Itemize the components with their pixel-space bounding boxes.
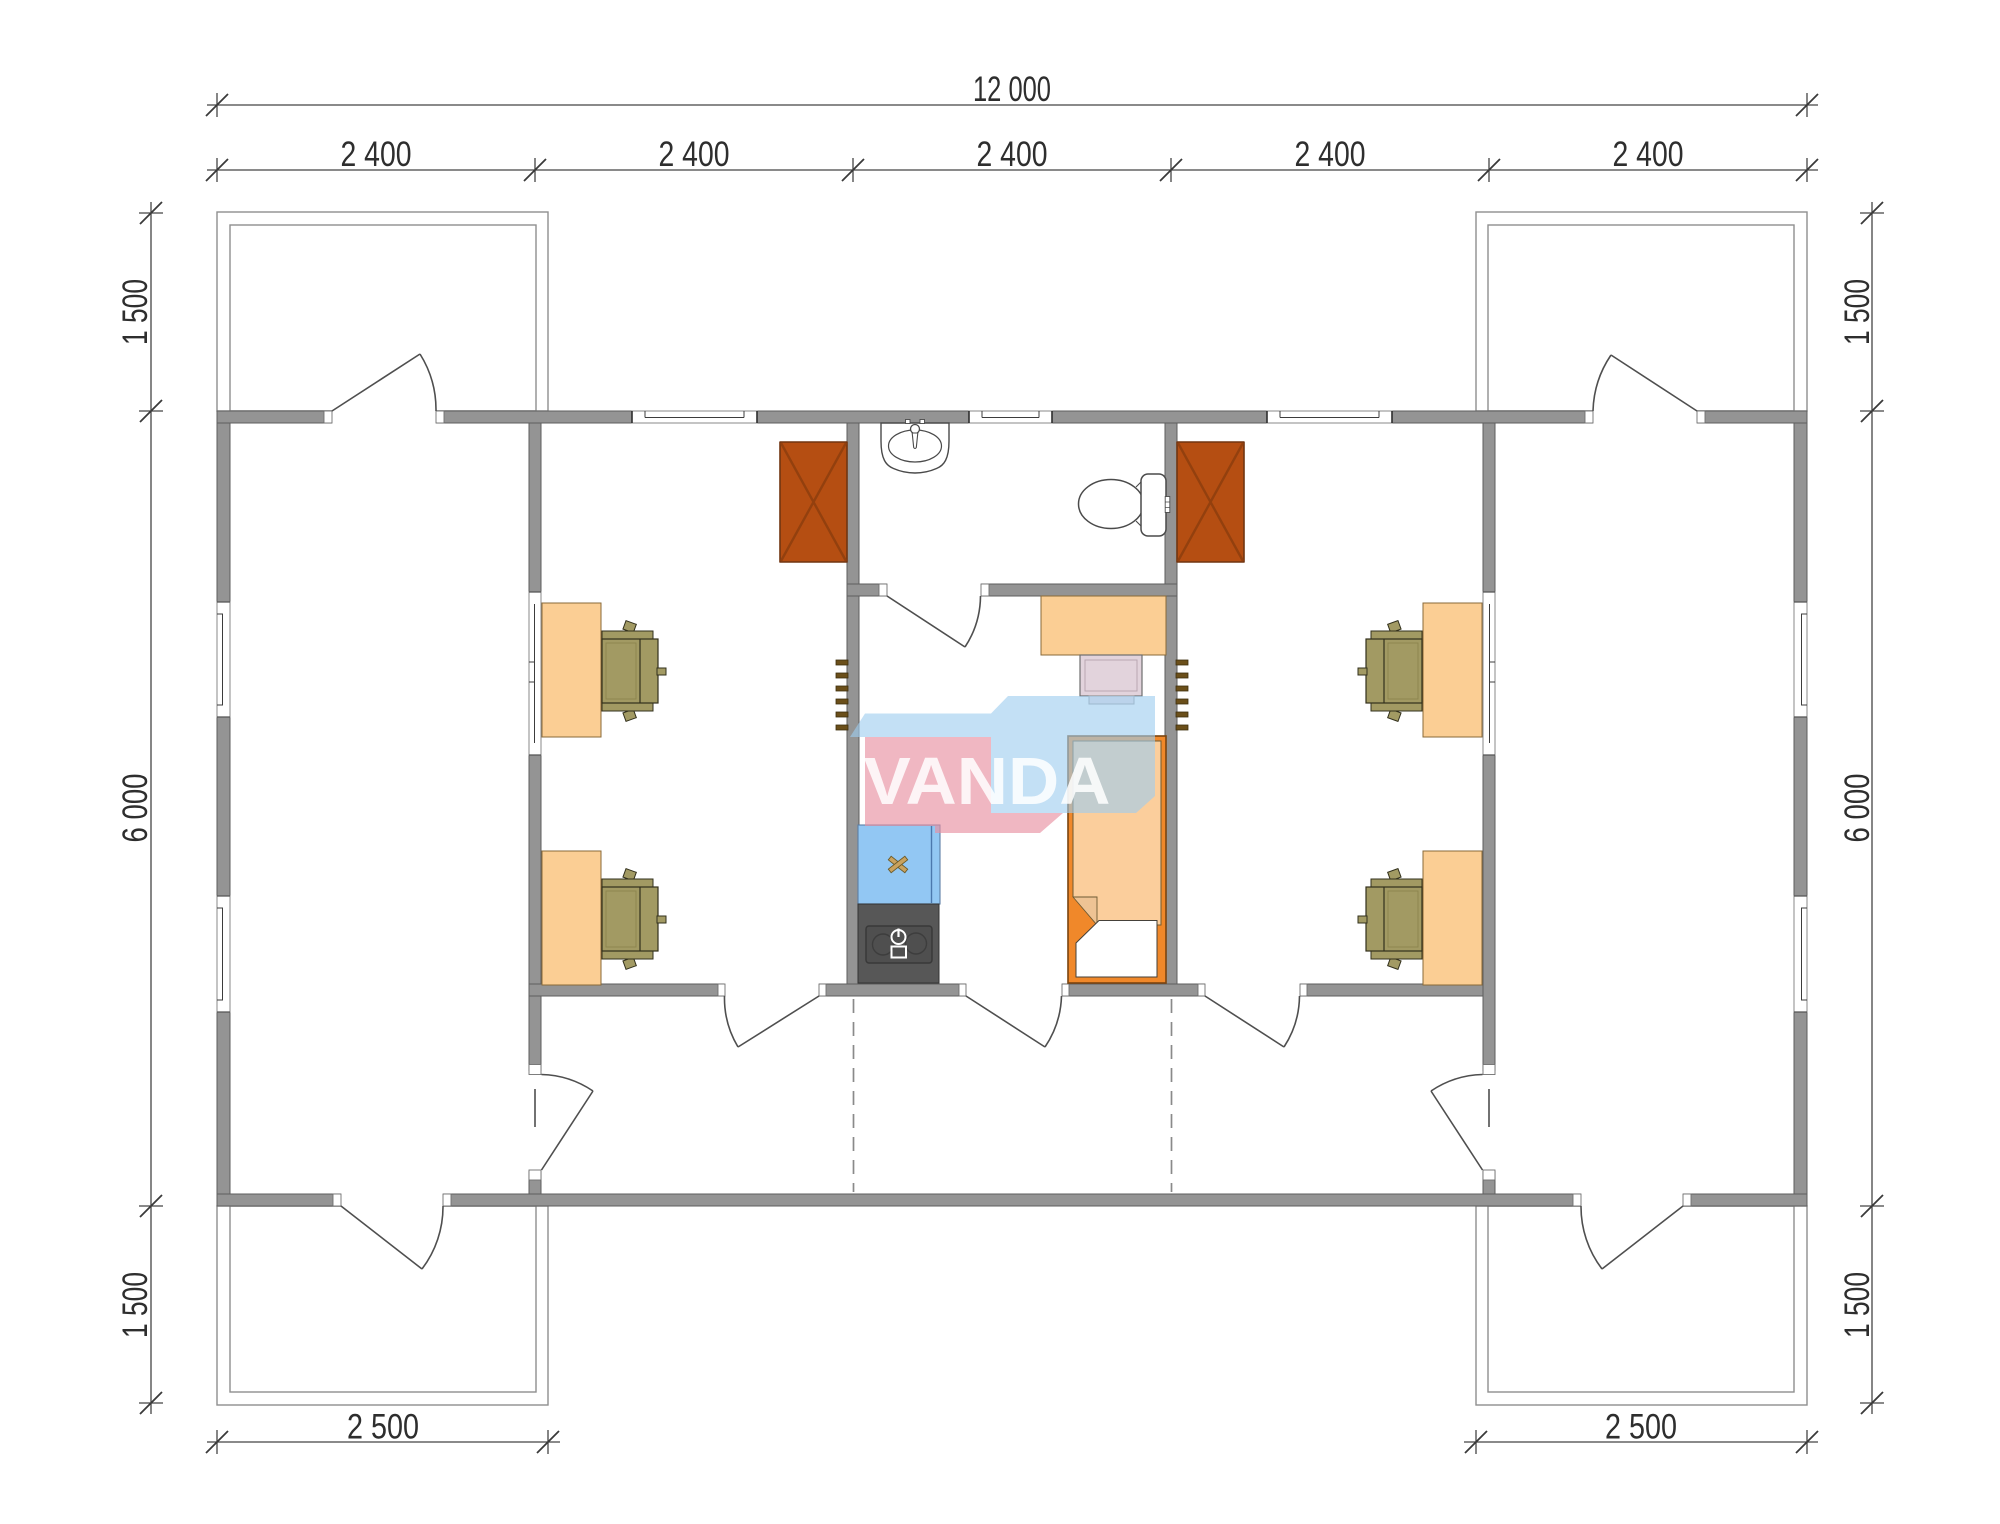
svg-text:2 400: 2 400 bbox=[341, 135, 412, 174]
svg-text:6 000: 6 000 bbox=[1838, 774, 1877, 843]
svg-text:1 500: 1 500 bbox=[116, 1272, 155, 1338]
svg-text:12 000: 12 000 bbox=[973, 70, 1051, 109]
svg-text:2 500: 2 500 bbox=[347, 1408, 419, 1447]
svg-text:VANDA: VANDA bbox=[864, 744, 1111, 819]
svg-text:6 000: 6 000 bbox=[116, 774, 155, 843]
svg-text:2 500: 2 500 bbox=[1605, 1408, 1677, 1447]
svg-text:2 400: 2 400 bbox=[1295, 135, 1366, 174]
svg-text:2 400: 2 400 bbox=[977, 135, 1048, 174]
svg-text:2 400: 2 400 bbox=[1613, 135, 1684, 174]
svg-text:1 500: 1 500 bbox=[116, 279, 155, 345]
svg-text:1 500: 1 500 bbox=[1838, 279, 1877, 345]
svg-text:1 500: 1 500 bbox=[1838, 1272, 1877, 1338]
svg-text:2 400: 2 400 bbox=[659, 135, 730, 174]
